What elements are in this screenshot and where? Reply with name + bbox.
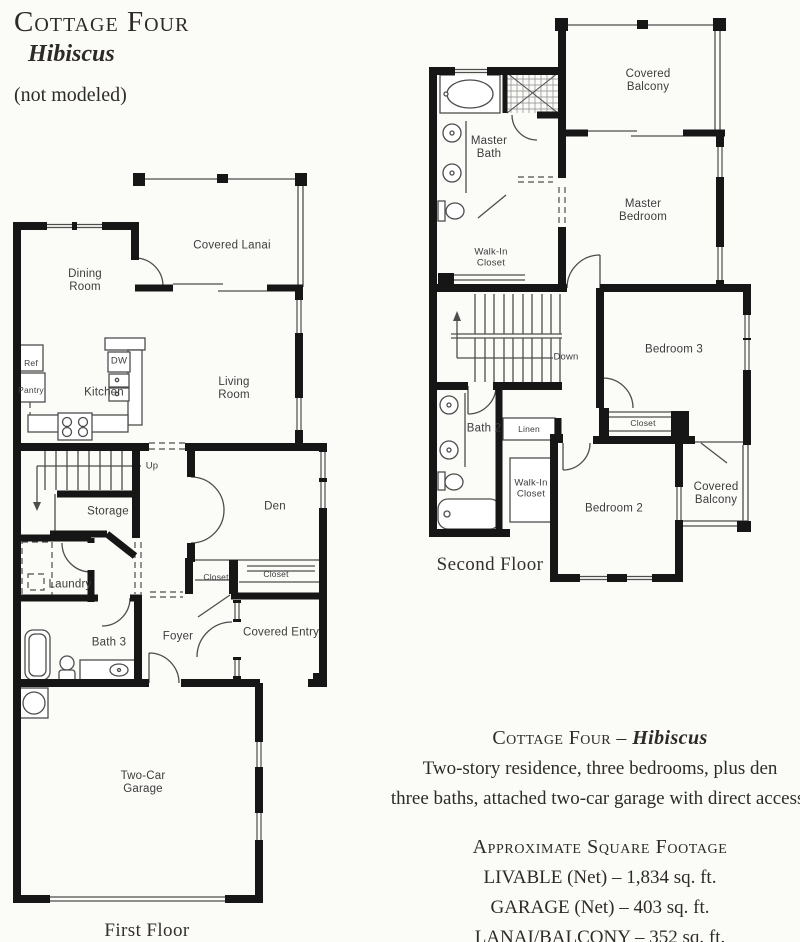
room-label-dining-room: Dining Room xyxy=(56,268,114,294)
first-floor-caption: First Floor xyxy=(104,920,189,942)
header-block: Cottage Four Hibiscus (not modeled) xyxy=(14,6,189,107)
room-label-bath-3: Bath 3 xyxy=(92,637,126,650)
room-label-covered-balcony-lower: Covered Balcony xyxy=(680,481,752,507)
label-dishwasher: DW xyxy=(111,357,127,368)
room-label-bedroom-2: Bedroom 2 xyxy=(585,503,643,516)
room-label-walk-in-closet-2: Walk-In Closet xyxy=(504,478,559,499)
down-arrow xyxy=(453,311,461,321)
room-label-living-room: Living Room xyxy=(204,376,264,402)
second-floor-caption: Second Floor xyxy=(437,554,544,576)
square-footage-garage: GARAGE (Net) – 403 sq. ft. xyxy=(383,897,800,919)
room-label-kitchen: Kitchen xyxy=(84,387,124,400)
room-label-covered-entry: Covered Entry xyxy=(243,627,319,640)
description-line-1: Two-story residence, three bedrooms, plu… xyxy=(383,758,800,780)
room-label-bedroom-3: Bedroom 3 xyxy=(645,344,703,357)
room-label-walk-in-closet-master: Walk-In Closet xyxy=(462,247,520,268)
up-arrow xyxy=(33,502,41,511)
description-title-prefix: Cottage Four – xyxy=(492,727,632,749)
room-label-bath-2: Bath 2 xyxy=(467,423,501,436)
room-label-covered-lanai: Covered Lanai xyxy=(192,240,272,253)
label-pantry: Pantry xyxy=(18,386,44,396)
room-label-covered-balcony-upper: Covered Balcony xyxy=(608,68,688,94)
first-floor-walls xyxy=(13,222,327,903)
description-block: Cottage Four – Hibiscus Two-story reside… xyxy=(383,727,800,942)
label-linen: Linen xyxy=(518,425,540,435)
label-closet-left: Closet xyxy=(203,573,228,583)
second-floor-dashed xyxy=(518,177,565,225)
description-model-name: Hibiscus xyxy=(632,727,707,749)
page-title: Cottage Four xyxy=(14,6,189,39)
label-ref: Ref xyxy=(24,359,38,369)
room-label-laundry: Laundry xyxy=(49,579,92,592)
square-footage-livable: LIVABLE (Net) – 1,834 sq. ft. xyxy=(383,867,800,889)
square-footage-lanai: LANAI/BALCONY – 352 sq. ft. xyxy=(383,927,800,942)
shower-tile xyxy=(507,73,558,113)
room-label-master-bath: Master Bath xyxy=(459,135,519,161)
room-label-den: Den xyxy=(264,501,286,514)
description-title: Cottage Four – Hibiscus xyxy=(383,727,800,750)
not-modeled-note: (not modeled) xyxy=(14,84,189,107)
square-footage-heading: Approximate Square Footage xyxy=(383,836,800,859)
label-closet-bedroom3: Closet xyxy=(630,419,655,429)
description-line-2: three baths, attached two-car garage wit… xyxy=(383,788,800,810)
label-stairs-down: Down xyxy=(553,353,578,364)
room-label-garage: Two-Car Garage xyxy=(108,770,178,796)
label-stairs-up: Up xyxy=(146,462,159,473)
model-name: Hibiscus xyxy=(28,41,189,68)
label-closet-right: Closet xyxy=(263,570,288,580)
room-label-storage: Storage xyxy=(87,506,129,519)
room-label-foyer: Foyer xyxy=(163,631,193,644)
floor-plan-page: Cottage Four Hibiscus (not modeled) xyxy=(0,0,800,942)
room-label-master-bedroom: Master Bedroom xyxy=(606,198,681,224)
